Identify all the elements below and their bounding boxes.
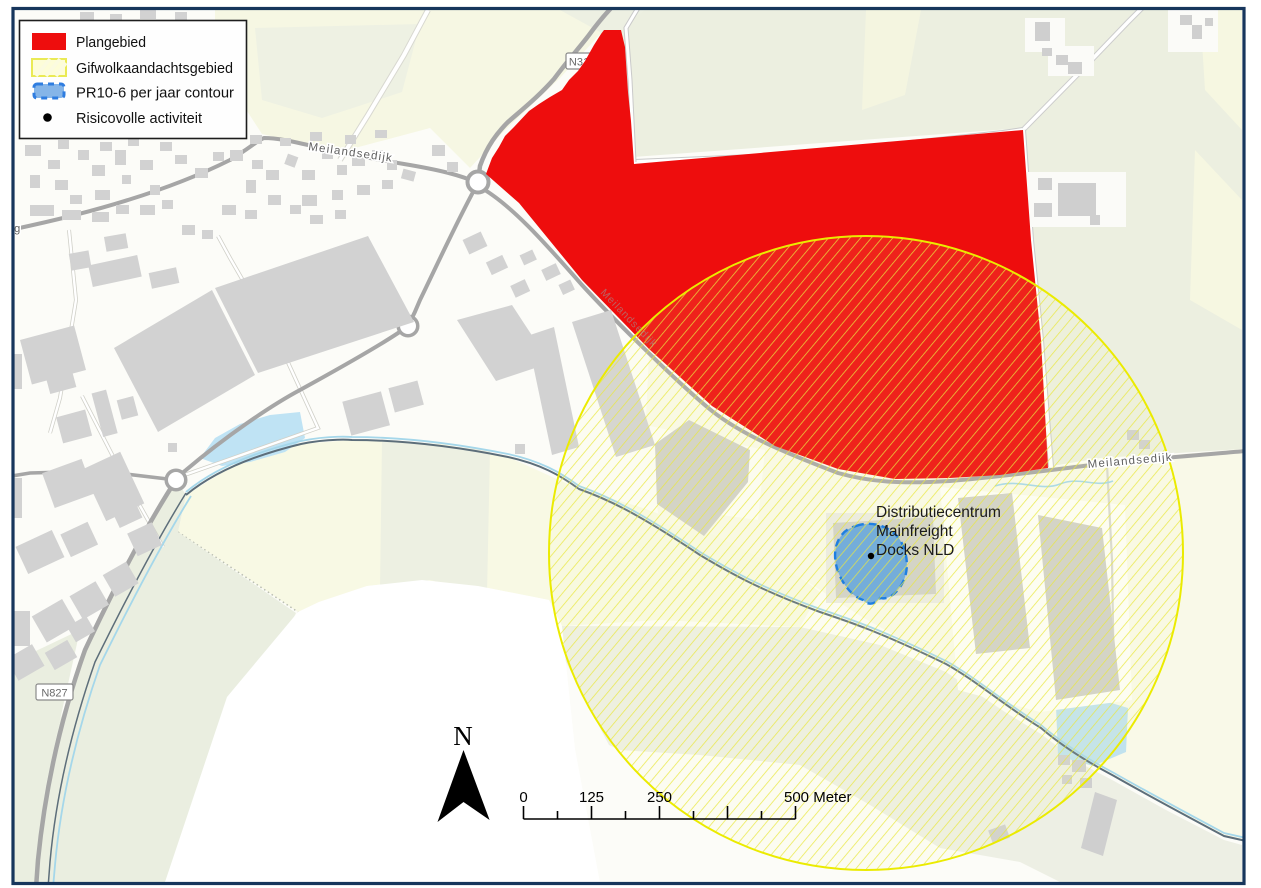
svg-text:PR10-6 per jaar contour: PR10-6 per jaar contour bbox=[76, 85, 234, 102]
svg-text:N827: N827 bbox=[41, 688, 67, 700]
svg-text:500 Meter: 500 Meter bbox=[784, 789, 852, 806]
svg-text:Docks NLD: Docks NLD bbox=[876, 542, 954, 559]
svg-text:Gifwolkaandachtsgebied: Gifwolkaandachtsgebied bbox=[76, 60, 233, 77]
svg-text:Mainfreight: Mainfreight bbox=[876, 523, 953, 540]
svg-text:Risicovolle activiteit: Risicovolle activiteit bbox=[76, 110, 203, 127]
svg-text:125: 125 bbox=[579, 789, 604, 806]
svg-text:N: N bbox=[453, 721, 473, 751]
svg-text:250: 250 bbox=[647, 789, 672, 806]
svg-text:0: 0 bbox=[519, 789, 527, 806]
svg-text:Plangebied: Plangebied bbox=[76, 34, 146, 51]
svg-text:Distributiecentrum: Distributiecentrum bbox=[876, 504, 1001, 521]
